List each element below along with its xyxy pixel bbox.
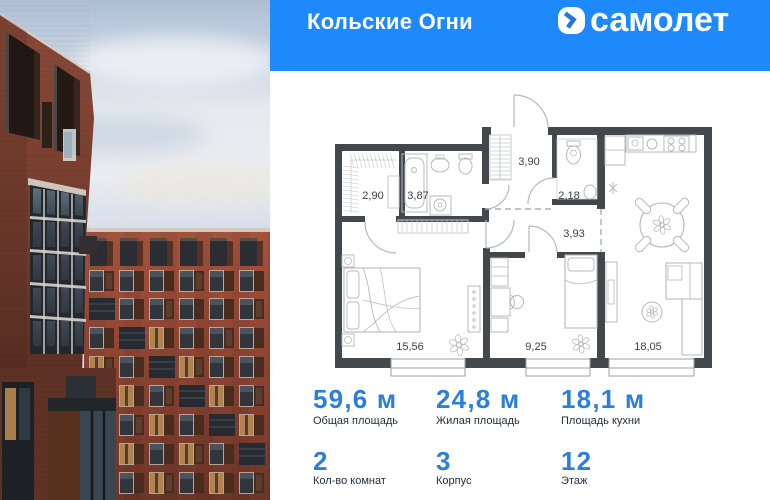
svg-text:2,18: 2,18 [558,190,579,202]
svg-text:18,05: 18,05 [634,341,662,353]
svg-text:3,87: 3,87 [407,190,428,202]
svg-text:3,90: 3,90 [518,156,539,168]
svg-text:15,56: 15,56 [396,341,424,353]
svg-text:9,25: 9,25 [525,341,546,353]
svg-text:3,93: 3,93 [563,228,584,240]
svg-text:2,90: 2,90 [362,190,383,202]
